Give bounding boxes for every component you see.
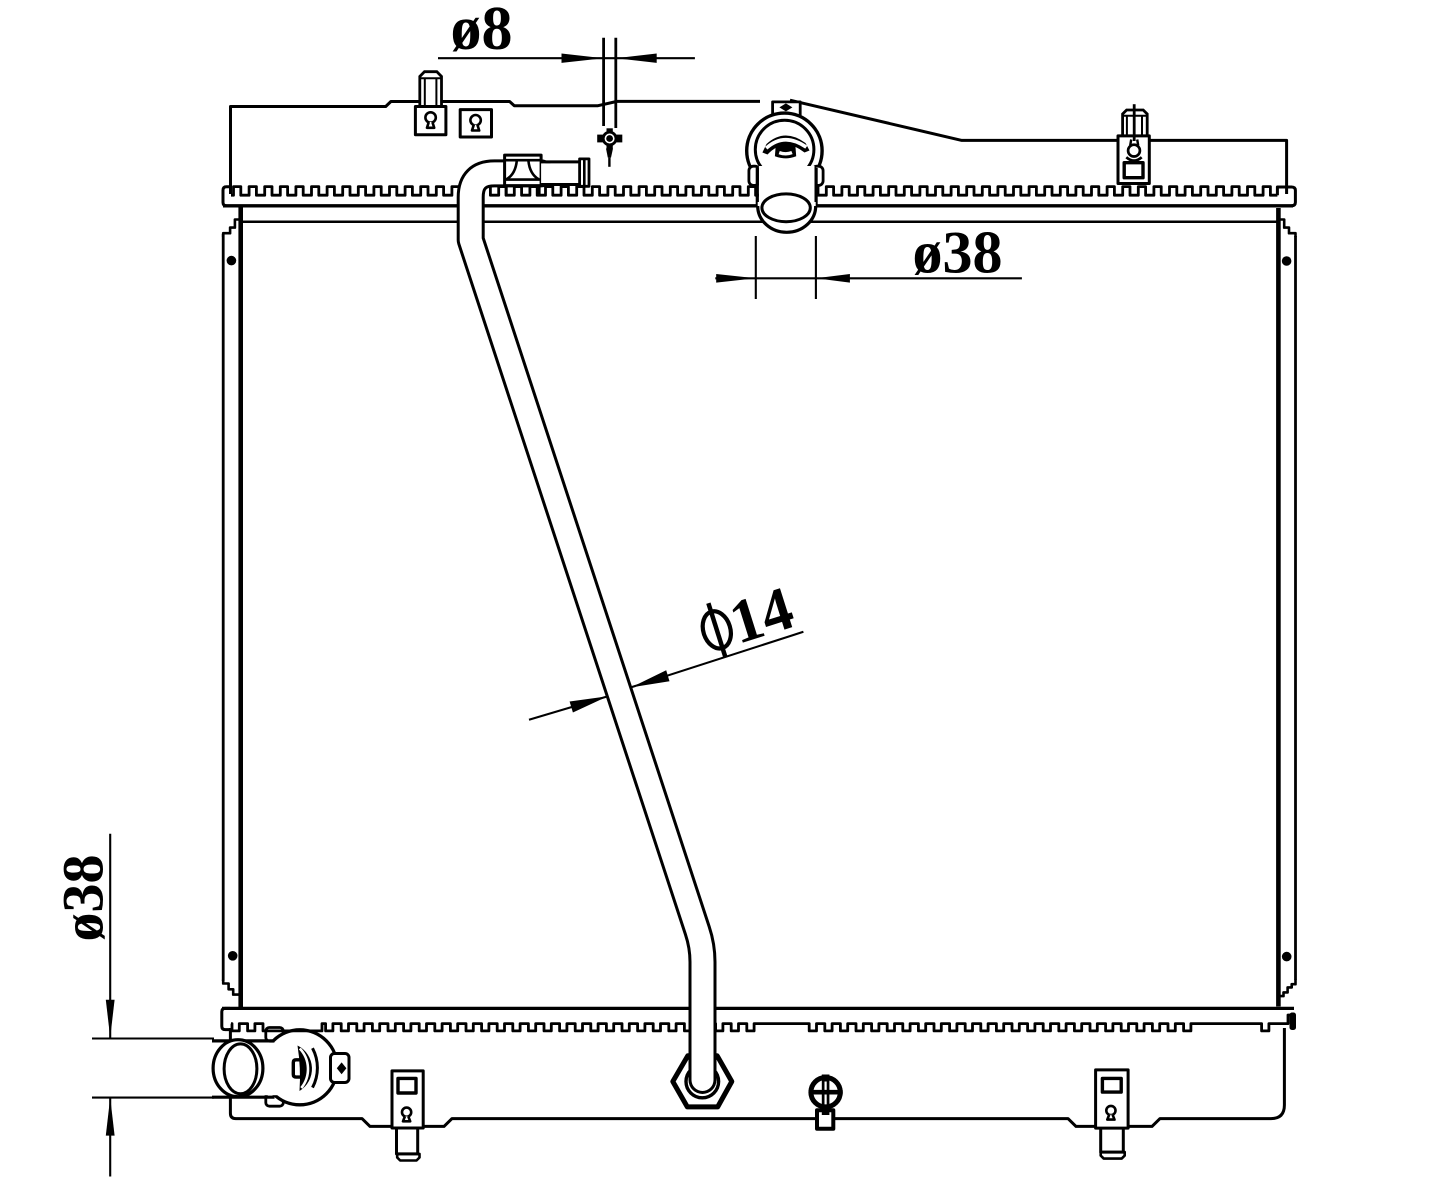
svg-text:ø8: ø8 — [451, 0, 513, 63]
svg-text:ø38: ø38 — [913, 220, 1003, 286]
svg-text:ø38: ø38 — [51, 855, 116, 942]
